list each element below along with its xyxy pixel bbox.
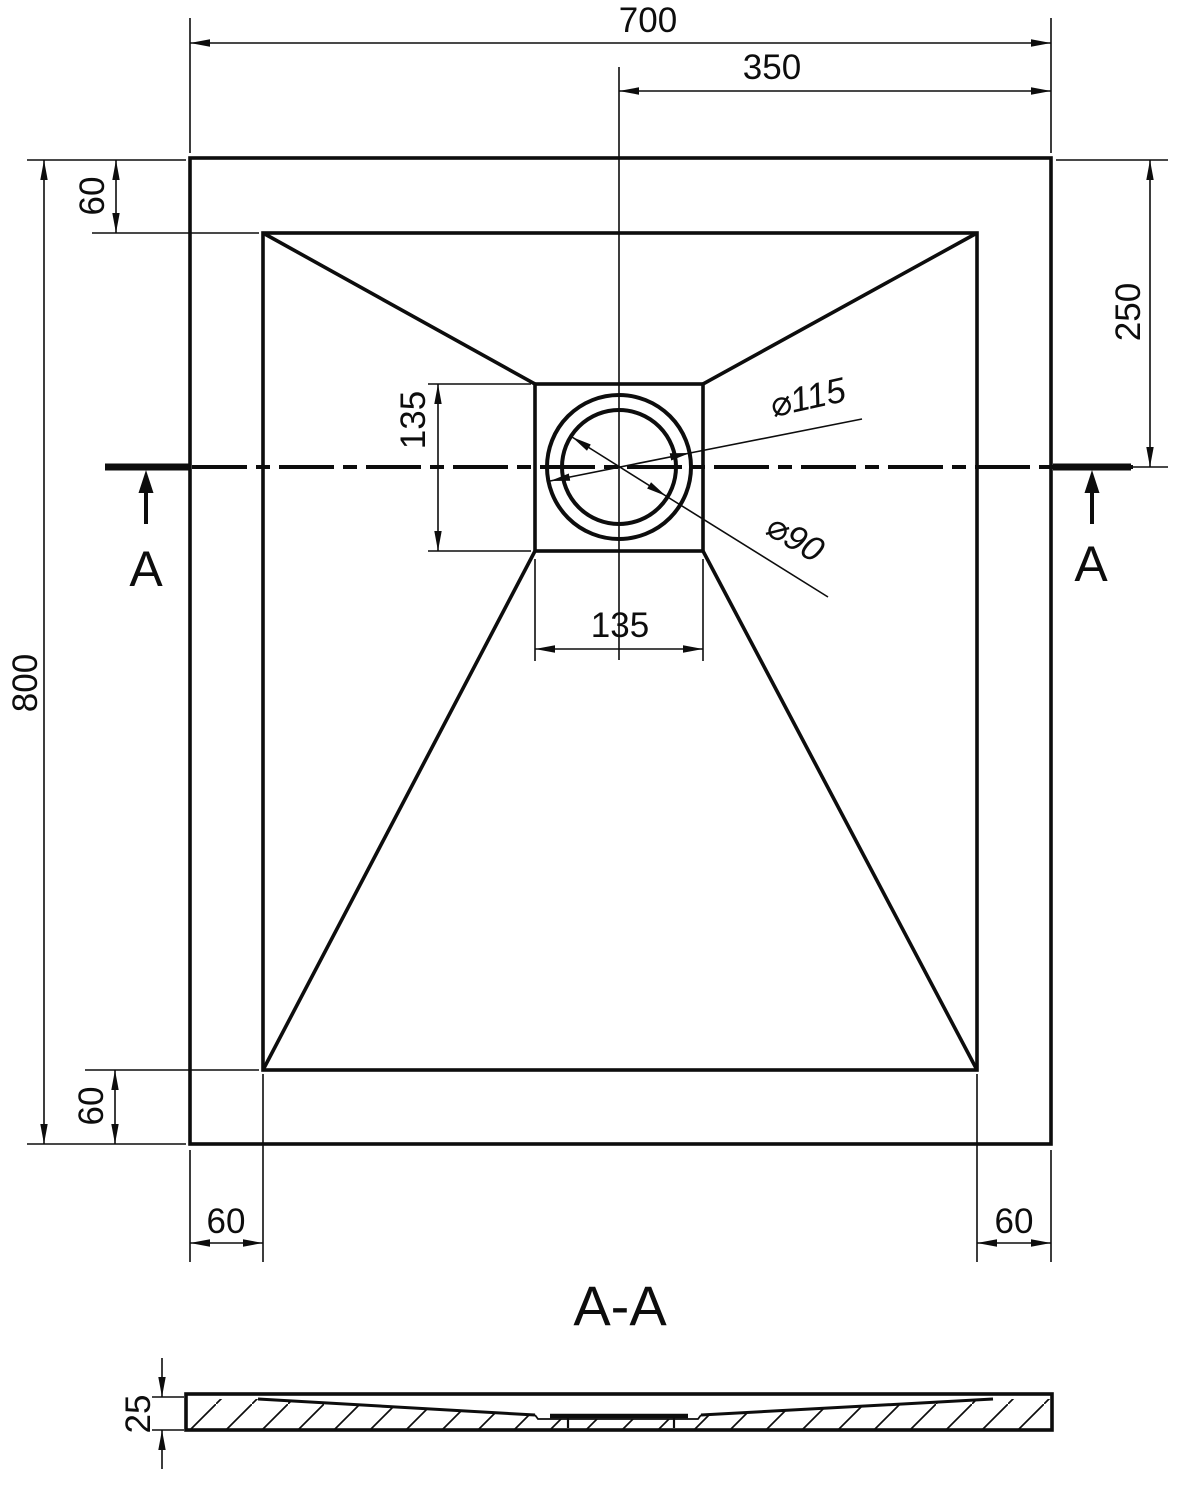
dim-drain-outer-diameter: ⌀115 (550, 370, 862, 481)
technical-drawing-sheet: A A 700 350 800 60 (0, 0, 1181, 1487)
dim-60-bottom-text: 60 (72, 1087, 111, 1126)
dim-d115-text: ⌀115 (766, 370, 850, 425)
dim-total-width: 700 (190, 1, 1051, 153)
dim-700-text: 700 (619, 1, 677, 40)
plan-view: A A 700 350 800 60 (6, 1, 1168, 1262)
section-label-left: A (129, 541, 163, 597)
dim-total-height: 800 (6, 160, 186, 1144)
section-title: A-A (573, 1274, 667, 1337)
section-view: A-A 25 (119, 1274, 1052, 1469)
tray-outer-rim (190, 158, 1051, 1144)
basin-slope-top-right (703, 233, 977, 384)
dim-center-to-right: 350 (619, 48, 1051, 91)
dim-60-left-text: 60 (207, 1202, 246, 1241)
dim-rim-left: 60 (190, 1074, 263, 1262)
dim-350-text: 350 (743, 48, 801, 87)
dim-rim-top: 60 (73, 160, 259, 233)
dim-135-vert-text: 135 (394, 391, 433, 449)
dim-rim-bottom: 60 (72, 1070, 259, 1144)
dim-rim-right: 60 (977, 1074, 1051, 1262)
dim-800-text: 800 (6, 654, 45, 712)
dim-thickness: 25 (119, 1358, 184, 1469)
basin-top-edge (263, 233, 977, 1070)
dim-135-horiz-text: 135 (591, 606, 649, 645)
basin-slope-top-left (263, 233, 535, 384)
dim-60-right-text: 60 (995, 1202, 1034, 1241)
dim-250-text: 250 (1109, 283, 1148, 341)
shower-tray-drawing: A A 700 350 800 60 (0, 0, 1181, 1487)
section-arrow-left (139, 470, 154, 524)
section-label-right: A (1074, 536, 1108, 592)
dim-25-text: 25 (119, 1395, 158, 1434)
dim-drain-from-top: 250 (1056, 160, 1168, 467)
dim-60-top-text: 60 (73, 177, 112, 216)
section-arrow-right (1085, 470, 1100, 524)
basin-slope-bottom-left (263, 551, 535, 1070)
basin-slope-bottom-right (703, 551, 977, 1070)
